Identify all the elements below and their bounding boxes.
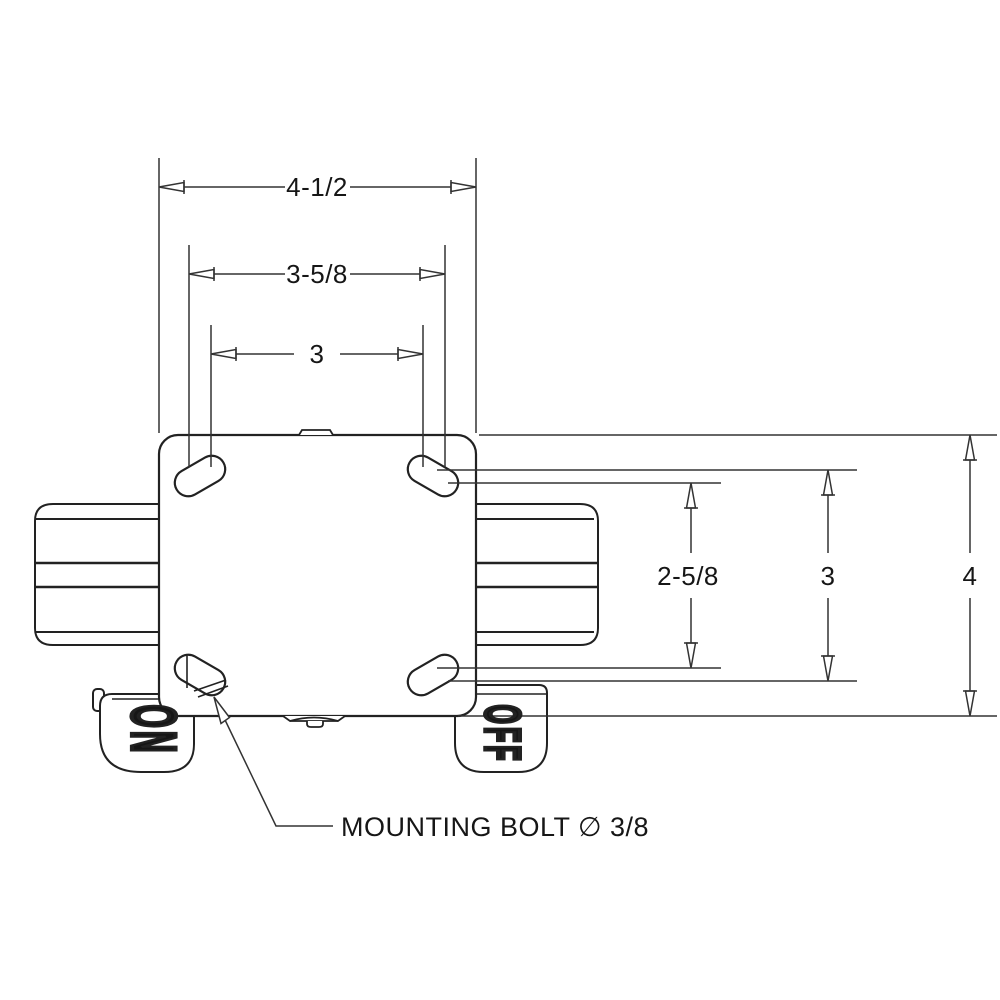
plate-top-tab — [299, 430, 333, 435]
dim-label-inner-span: 3 — [310, 339, 325, 369]
dim-label-inner-span-v: 2-5/8 — [657, 561, 719, 591]
technical-drawing: 4-1/2 3-5/8 3 2-5/8 3 4 MOUNTING BOLT ∅ … — [0, 0, 1000, 1000]
dim-label-overall-height: 4 — [963, 561, 978, 591]
plate-kingpin-detail — [283, 716, 345, 727]
dim-label-outer-span: 3-5/8 — [286, 259, 348, 289]
pedal-off-label: OFF — [474, 705, 530, 764]
mounting-bolt-note: MOUNTING BOLT ∅ 3/8 — [341, 812, 649, 842]
wheel-left — [35, 504, 162, 645]
dimension-lines-top — [159, 158, 476, 467]
wheel-right — [474, 504, 598, 645]
dim-label-overall-width: 4-1/2 — [286, 172, 348, 202]
drawing-canvas: 4-1/2 3-5/8 3 2-5/8 3 4 MOUNTING BOLT ∅ … — [0, 0, 1000, 1000]
pedal-on-label: ON — [118, 705, 188, 756]
dim-label-outer-span-v: 3 — [821, 561, 836, 591]
